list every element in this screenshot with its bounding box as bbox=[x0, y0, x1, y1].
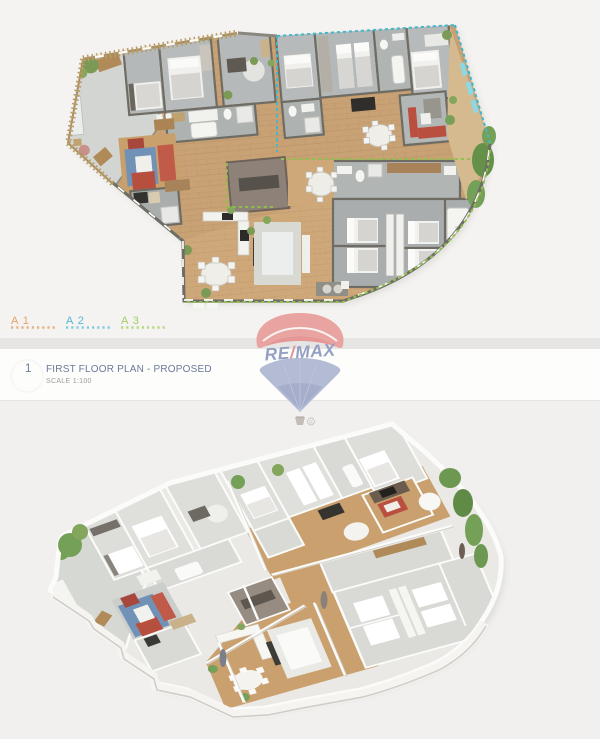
svg-text:A 1: A 1 bbox=[11, 315, 30, 327]
svg-text:1: 1 bbox=[25, 363, 31, 375]
svg-text:R: R bbox=[309, 420, 313, 426]
svg-text:A 2: A 2 bbox=[66, 315, 85, 327]
svg-text:A 3: A 3 bbox=[121, 315, 140, 327]
svg-text:SCALE 1:100: SCALE 1:100 bbox=[46, 378, 92, 385]
svg-text:FIRST FLOOR PLAN - PROPOSED: FIRST FLOOR PLAN - PROPOSED bbox=[46, 364, 212, 375]
